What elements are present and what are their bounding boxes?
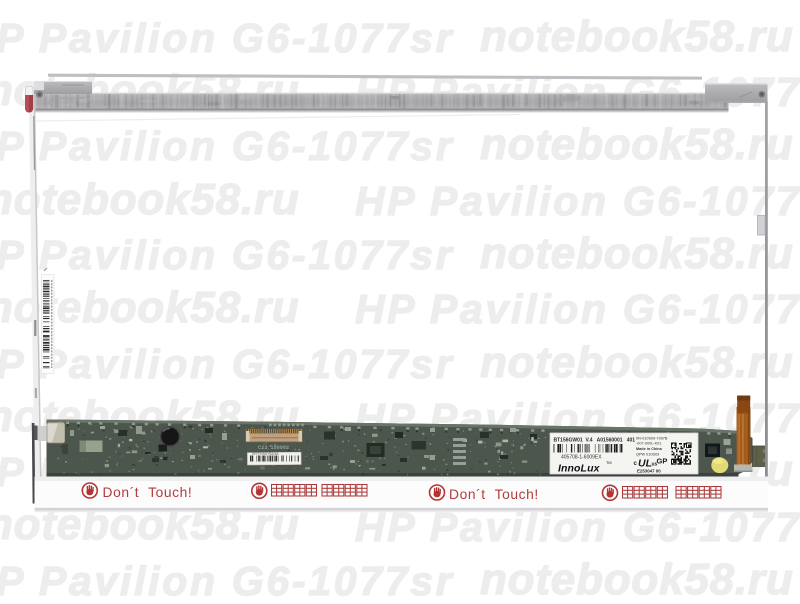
- svg-text:TM: TM: [606, 461, 611, 465]
- svg-text:BT156GW01 V.4 A01560001 4: BT156GW01 V.4 A01560001 401: [554, 438, 636, 444]
- svg-text:Don´t Touch!: Don´t Touch!: [449, 487, 539, 502]
- svg-text:Made in China: Made in China: [636, 447, 663, 451]
- svg-text:Don´t Touch!: Don´t Touch!: [103, 485, 193, 500]
- svg-text:E253047 00: E253047 00: [637, 469, 661, 474]
- svg-text:GP: GP: [657, 457, 668, 466]
- svg-text:0N-010S09-7097B: 0N-010S09-7097B: [636, 437, 668, 441]
- svg-text:-007-000L-K01: -007-000L-K01: [636, 442, 661, 446]
- svg-text:C23 199982: C23 199982: [258, 445, 289, 451]
- svg-text:InnoLux: InnoLux: [558, 463, 601, 475]
- svg-text:405708-1-6009EX: 405708-1-6009EX: [561, 455, 602, 461]
- svg-text:GP/JY05GYB3264: GP/JY05GYB3264: [252, 452, 279, 456]
